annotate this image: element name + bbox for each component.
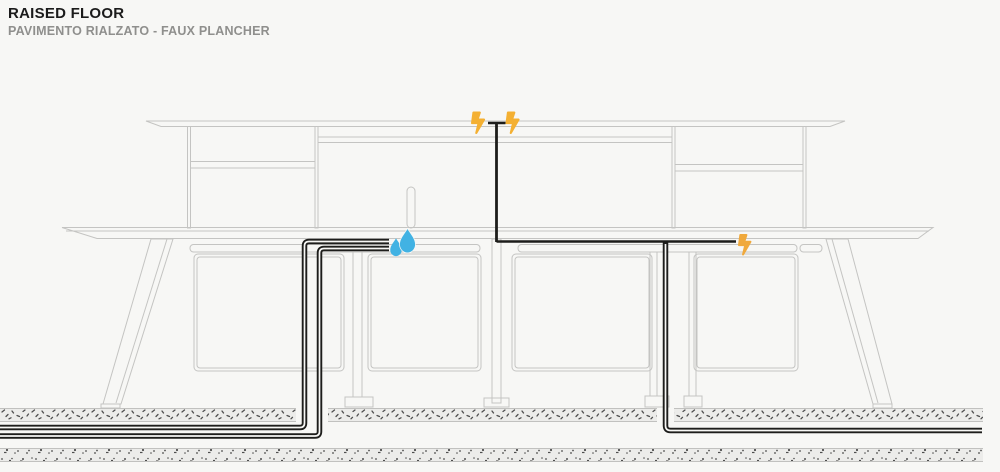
left-leg xyxy=(101,239,173,408)
power-pole xyxy=(488,123,506,242)
right-leg xyxy=(826,239,892,408)
floor-top-slab xyxy=(0,409,983,422)
lightning-bolt-icon xyxy=(505,112,519,135)
raised-floor-diagram: RAISED FLOOR PAVIMENTO RIALZATO - FAUX P… xyxy=(0,0,1000,472)
cabinet-bays xyxy=(194,254,798,371)
lightning-bolt-icon xyxy=(471,112,485,135)
water-drop-icon xyxy=(400,229,415,252)
power-cable-run xyxy=(497,241,983,431)
utility-cables xyxy=(0,123,982,436)
utility-icons xyxy=(390,112,751,257)
section-drawing xyxy=(0,0,1000,472)
apron-rails xyxy=(190,245,822,253)
support-columns xyxy=(345,239,702,407)
faucet xyxy=(407,187,415,228)
floor-bottom-slab xyxy=(0,449,983,462)
